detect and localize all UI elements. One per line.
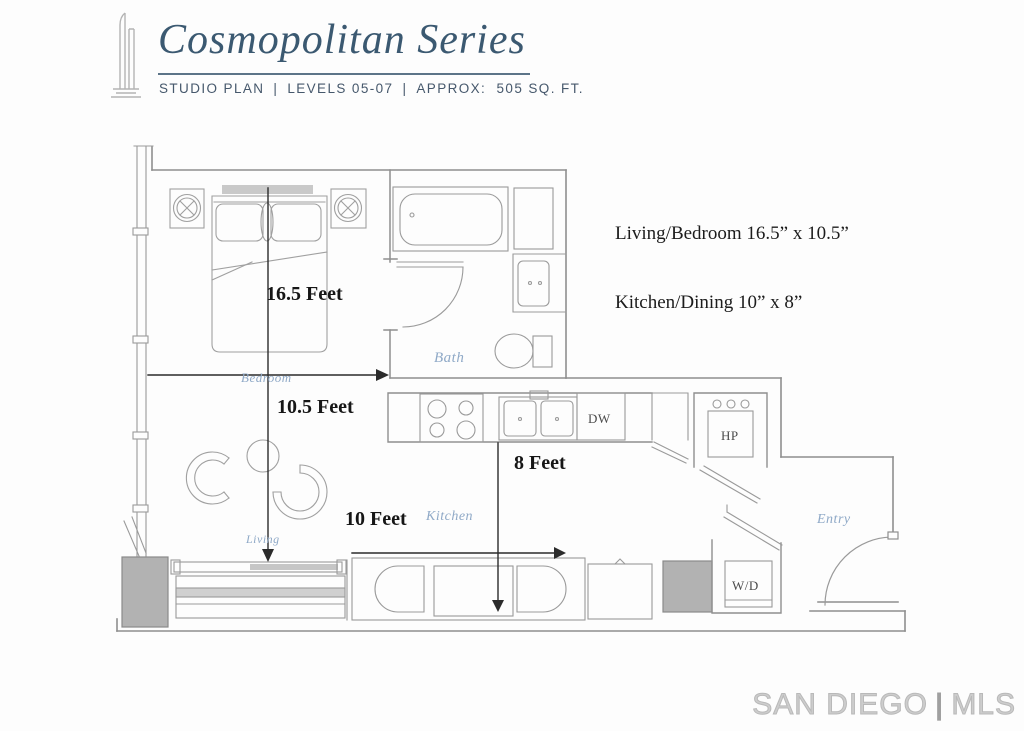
window-seat-sofa	[176, 576, 345, 618]
window-wall	[124, 146, 153, 557]
bathroom	[384, 170, 566, 378]
watermark-brand: SAN DIEGO	[752, 688, 928, 722]
bath-vanity-sink	[513, 254, 566, 312]
dimension-label-kitchen-width: 8 Feet	[514, 452, 566, 474]
round-table	[247, 440, 279, 472]
dimension-label-kitchen-length: 10 Feet	[345, 508, 407, 530]
dimension-label-bedroom-length: 16.5 Feet	[266, 283, 343, 305]
bath-cabinet	[514, 188, 553, 249]
dimension-lines	[148, 188, 566, 612]
bath-door	[397, 262, 463, 327]
armchair-right	[273, 465, 327, 519]
bathtub	[393, 187, 508, 251]
watermark-suffix: MLS	[951, 688, 1016, 722]
column-left	[122, 557, 168, 627]
dimension-label-bedroom-width: 10.5 Feet	[277, 396, 354, 418]
toilet	[495, 334, 552, 368]
sliding-door-sill	[171, 560, 346, 574]
kitchen-counter	[388, 391, 652, 442]
stove	[420, 394, 483, 442]
bottom-window-units	[171, 558, 652, 620]
entry-door	[825, 532, 898, 605]
window-box	[588, 559, 652, 619]
cabinet-run	[352, 558, 585, 620]
kitchen-sink	[499, 391, 577, 440]
bath-door-arc	[403, 267, 463, 327]
room-label-bedroom: Bedroom	[241, 370, 292, 385]
dishwasher-label: DW	[588, 411, 611, 426]
mls-watermark: SAN DIEGO|MLS	[752, 688, 1016, 722]
bed	[212, 196, 327, 352]
bath-walls	[384, 170, 566, 378]
pantry-closet	[652, 393, 688, 463]
nightstand-left	[170, 189, 204, 228]
heat-pump-label: HP	[721, 428, 739, 443]
floor-plan-page: Cosmopolitan Series STUDIO PLAN|LEVELS 0…	[0, 0, 1024, 731]
nightstand-right	[331, 189, 366, 228]
wd-closet	[712, 505, 782, 613]
floor-plan-drawing: 16.5 Feet 10.5 Feet 8 Feet 10 Feet Bedro…	[0, 0, 1024, 731]
column-right	[663, 561, 712, 612]
living-furniture	[186, 440, 327, 519]
armchair-left	[186, 452, 229, 504]
room-label-bath: Bath	[434, 350, 464, 366]
watermark-divider: |	[935, 688, 944, 722]
hp-closet	[694, 393, 767, 503]
entry-door-arc	[825, 537, 893, 605]
room-label-living: Living	[245, 532, 280, 546]
room-label-kitchen: Kitchen	[425, 509, 473, 524]
washer-dryer-label: W/D	[732, 578, 759, 593]
room-label-entry: Entry	[816, 512, 851, 527]
